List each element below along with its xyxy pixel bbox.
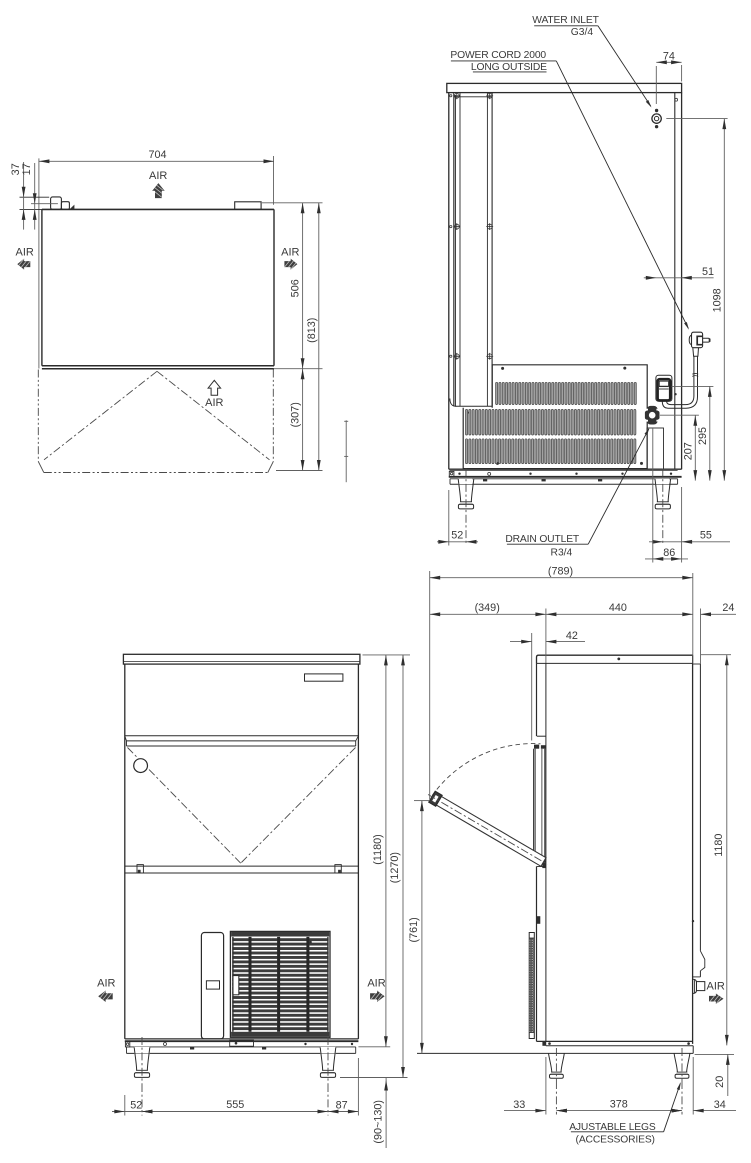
svg-text:87: 87 [336, 1100, 348, 1112]
svg-text:AIR: AIR [367, 977, 385, 989]
svg-text:86: 86 [663, 547, 675, 559]
svg-text:LONG OUTSIDE: LONG OUTSIDE [471, 62, 547, 73]
svg-text:(349): (349) [475, 602, 500, 614]
svg-text:R3/4: R3/4 [551, 548, 573, 559]
svg-text:34: 34 [714, 1099, 726, 1111]
svg-text:37: 37 [10, 163, 22, 175]
svg-text:(761): (761) [408, 917, 420, 942]
svg-text:AIR: AIR [97, 977, 115, 989]
svg-text:74: 74 [663, 50, 675, 62]
svg-text:440: 440 [609, 602, 627, 614]
svg-text:33: 33 [513, 1099, 525, 1111]
svg-text:24: 24 [722, 602, 734, 614]
svg-text:AIR: AIR [149, 170, 167, 182]
svg-text:(1270): (1270) [389, 852, 401, 883]
svg-text:51: 51 [702, 266, 714, 278]
svg-text:AIR: AIR [707, 981, 725, 993]
svg-text:(90~130): (90~130) [372, 1100, 384, 1144]
svg-text:52: 52 [451, 530, 463, 542]
svg-text:(789): (789) [548, 565, 573, 577]
svg-text:506: 506 [290, 279, 302, 297]
svg-text:555: 555 [226, 1099, 244, 1111]
svg-text:AIR: AIR [205, 397, 223, 409]
svg-text:17: 17 [21, 163, 33, 175]
svg-text:G3/4: G3/4 [571, 27, 594, 38]
svg-text:20: 20 [714, 1076, 726, 1088]
svg-text:1180: 1180 [713, 834, 725, 857]
svg-text:(1180): (1180) [372, 834, 384, 864]
svg-text:DRAIN OUTLET: DRAIN OUTLET [505, 534, 580, 545]
svg-text:(ACCESSORIES): (ACCESSORIES) [576, 1134, 655, 1145]
svg-text:378: 378 [610, 1099, 628, 1111]
svg-text:42: 42 [566, 630, 578, 642]
svg-text:52: 52 [130, 1100, 142, 1112]
svg-text:704: 704 [148, 149, 166, 161]
svg-text:295: 295 [697, 427, 709, 445]
svg-text:POWER CORD 2000: POWER CORD 2000 [450, 50, 546, 61]
svg-text:AJUSTABLE LEGS: AJUSTABLE LEGS [569, 1122, 656, 1133]
svg-text:AIR: AIR [281, 246, 299, 258]
svg-text:WATER INLET: WATER INLET [532, 15, 599, 26]
svg-text:(307): (307) [290, 402, 302, 427]
svg-text:55: 55 [700, 530, 712, 542]
svg-text:1098: 1098 [711, 288, 723, 312]
svg-text:AIR: AIR [16, 246, 34, 258]
svg-text:207: 207 [682, 442, 694, 460]
svg-text:(813): (813) [306, 318, 318, 343]
